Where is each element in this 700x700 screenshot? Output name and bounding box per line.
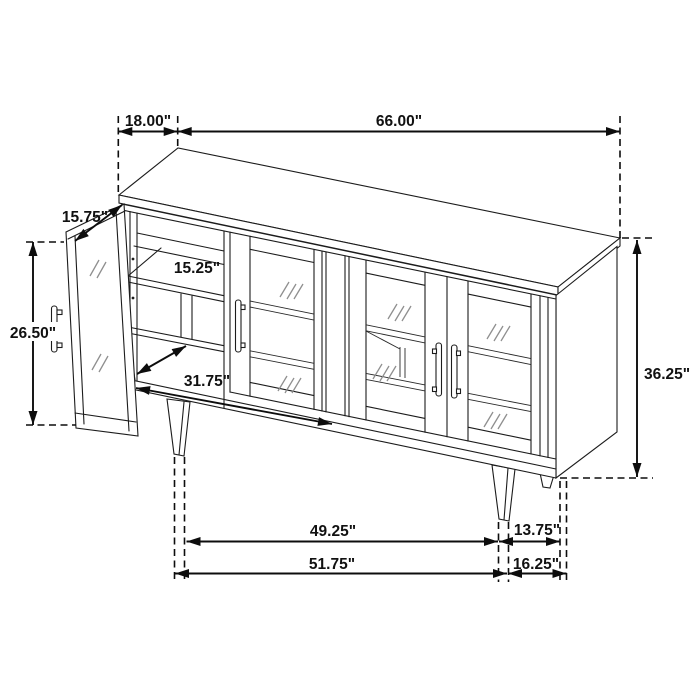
dim-label-front-leg-span: 49.25" [310,523,356,540]
cabinet-line-art [52,148,621,521]
dim-top-width: 66.00" [178,113,620,136]
dim-base-span: 51.75" [175,556,507,578]
furniture-dimension-diagram: 18.00" 66.00" 15.75" 26.50" 15.25" [0,0,700,700]
open-glass-door [52,204,139,436]
front-right-leg [492,465,515,521]
shelf-pin-hole [132,258,135,261]
dim-label-overall-height: 36.25" [644,366,690,383]
dim-front-leg-span: 49.25" [187,523,499,546]
shelf-pin-hole [132,297,135,300]
dim-left-height: 26.50" [8,242,59,425]
dim-overall-height: 36.25" [633,240,691,477]
dim-label-door-width: 15.75" [62,209,108,226]
dim-label-right-leg-inset: 13.75" [514,522,560,539]
dim-right-base-inset: 16.25" [508,556,567,578]
dim-label-right-base-inset: 16.25" [513,556,559,573]
dim-label-top-depth: 18.00" [125,113,171,130]
dim-label-top-width: 66.00" [376,113,422,130]
dim-top-depth: 18.00" [118,113,177,136]
dimension-drawing-svg: 18.00" 66.00" 15.75" 26.50" 15.25" [0,0,700,700]
dim-label-base-span: 51.75" [309,556,355,573]
dim-label-interior-width: 31.75" [184,373,230,390]
dim-label-left-height: 26.50" [10,325,56,342]
front-left-leg [167,399,190,456]
dim-label-shelf-depth: 15.25" [174,260,220,277]
